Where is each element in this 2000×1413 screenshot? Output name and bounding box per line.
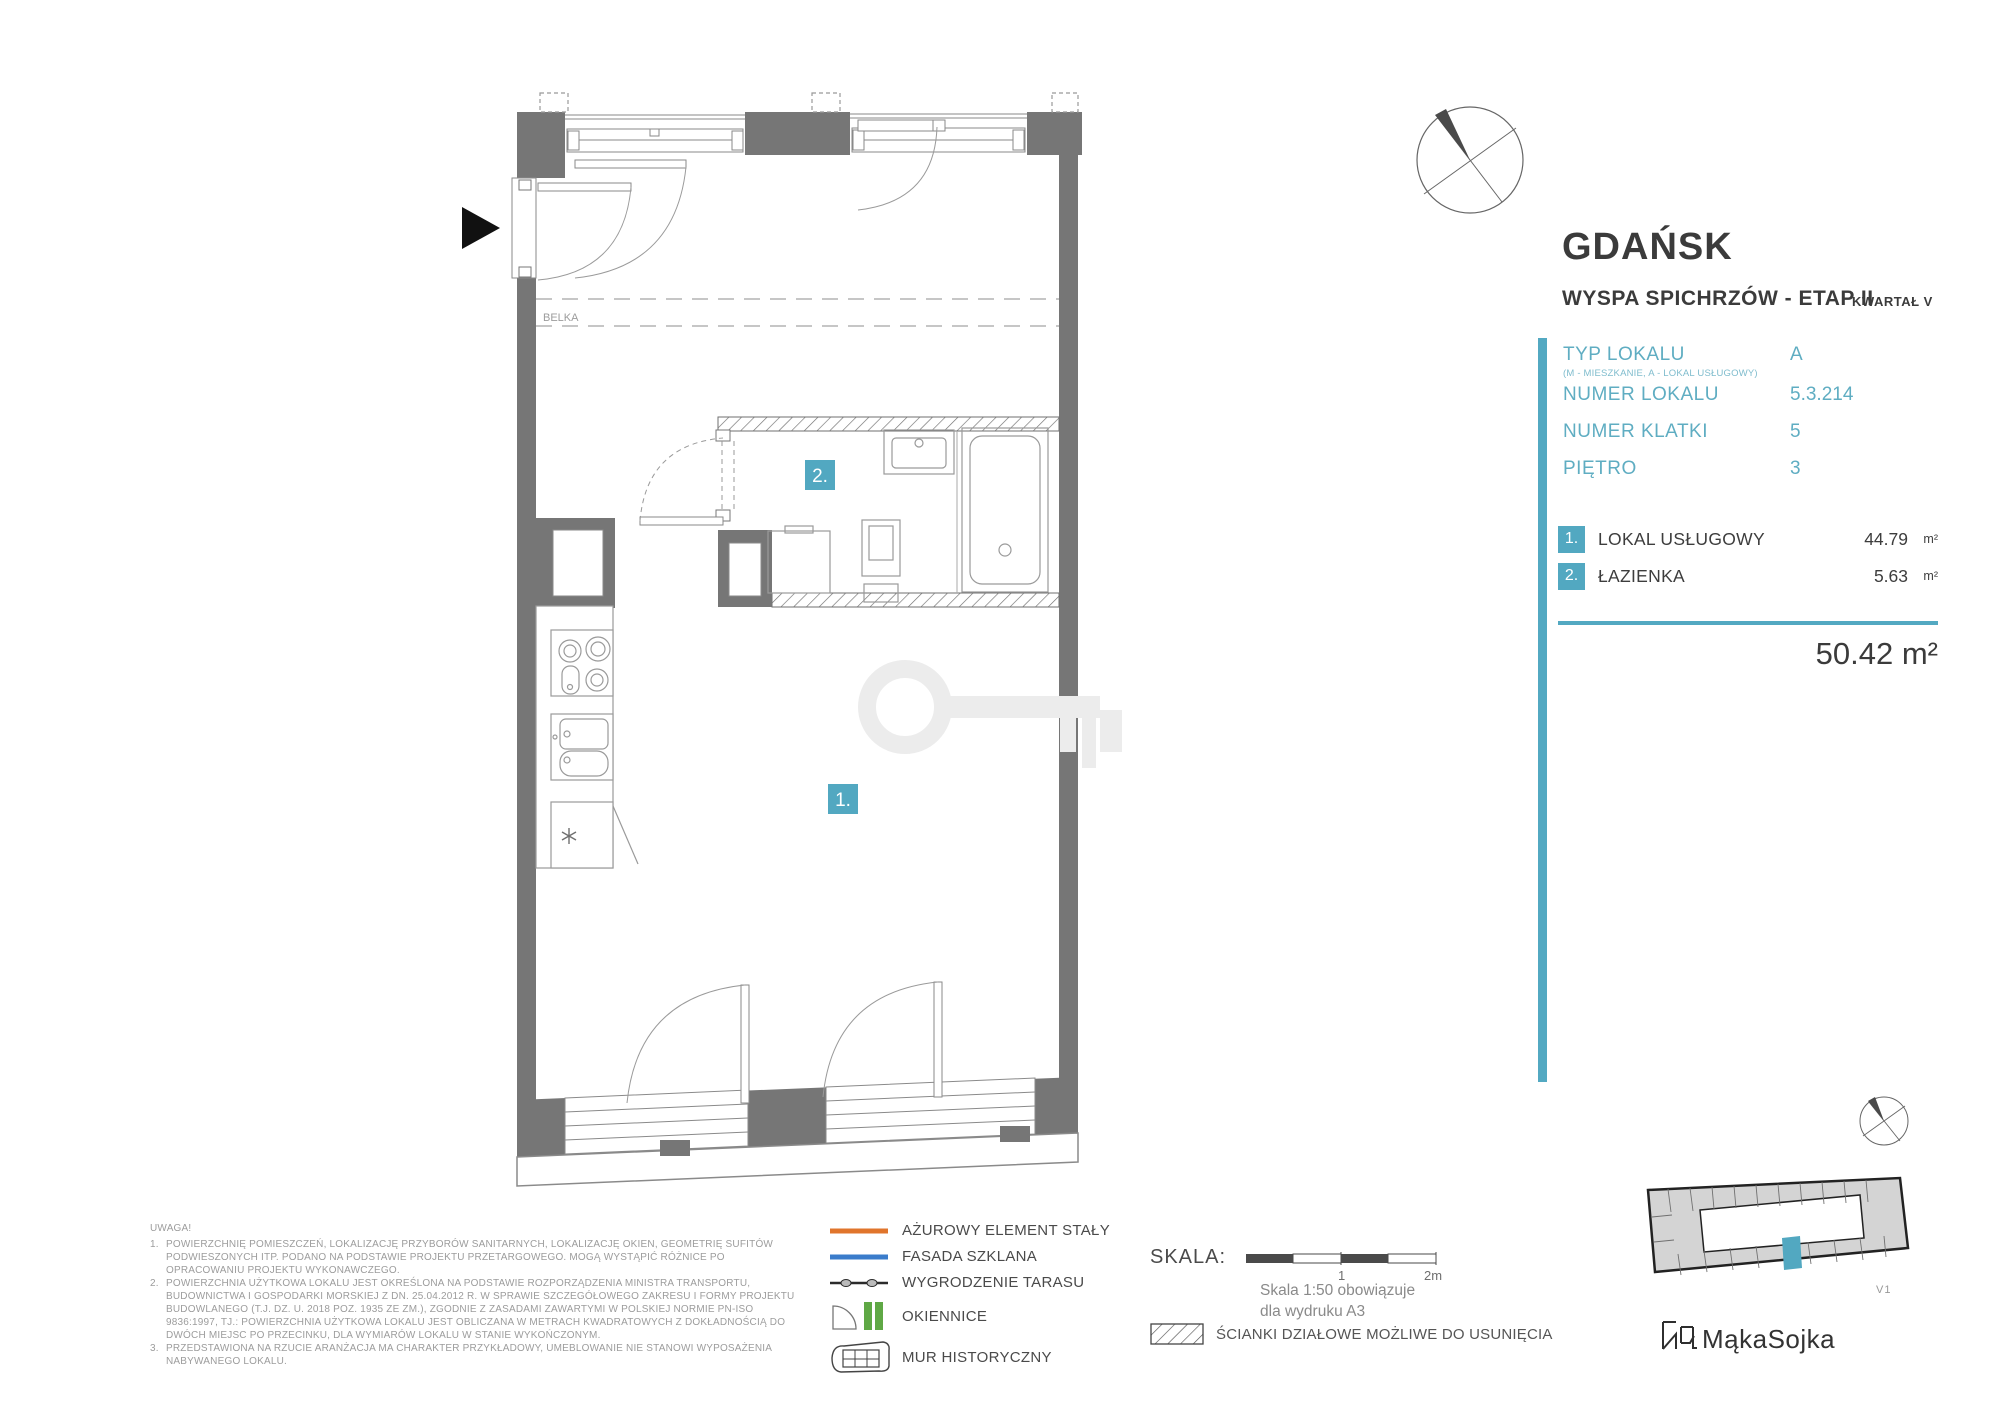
partition-legend-label: ŚCIANKI DZIAŁOWE MOŻLIWE DO USUNIĘCIA <box>1216 1326 1553 1343</box>
bathroom: 2. <box>640 417 1059 607</box>
kitchen-hob <box>551 630 613 696</box>
brand-logo-icon <box>1660 1318 1698 1354</box>
total-area: 50.42 m² <box>1558 636 1938 672</box>
bathtub <box>962 428 1048 592</box>
kitchen-cabinet <box>551 802 613 868</box>
blue-line-icon <box>830 1253 892 1261</box>
notes-title: UWAGA! <box>150 1222 805 1235</box>
info-sublabel: (M - MIESZKANIE, A - LOKAL USŁUGOWY) <box>1563 368 1758 379</box>
info-value: 5.3.214 <box>1790 384 1853 406</box>
accent-bar <box>1538 338 1547 1082</box>
page-title: GDAŃSK <box>1562 226 1733 269</box>
room-area-unit: m² <box>1908 569 1938 583</box>
room-2-badge-label: 2. <box>812 466 828 487</box>
note-text: POWIERZCHNIA UŻYTKOWA LOKALU JEST OKREŚL… <box>166 1277 805 1342</box>
room-area: 44.79 <box>1864 529 1908 550</box>
shutters-icon <box>830 1300 892 1332</box>
info-value: 5 <box>1790 421 1801 443</box>
note-item: 1. POWIERZCHNIĘ POMIESZCZEŃ, LOKALIZACJĘ… <box>150 1238 805 1277</box>
beam-label: BELKA <box>543 312 579 324</box>
key-watermark <box>867 669 1122 768</box>
kitchen <box>536 606 638 868</box>
info-label: PIĘTRO <box>1563 458 1637 480</box>
info-row-typ-lokalu: TYP LOKALU A <box>1563 344 1937 370</box>
room-row-1: 1. LOKAL USŁUGOWY 44.79 m² <box>1558 525 1938 553</box>
north-compass-icon <box>1408 100 1532 224</box>
room-1-badge-label: 1. <box>835 790 851 811</box>
room-name: LOKAL USŁUGOWY <box>1598 529 1765 550</box>
quarter-label: KWARTAŁ V <box>1852 294 1933 309</box>
scale-caption-2: dla wydruku A3 <box>1260 1303 1365 1321</box>
floor-plan-drawing: BELKA 2. <box>440 55 1140 1215</box>
washing-machine <box>768 531 830 593</box>
scale-label: SKALA: <box>1150 1246 1226 1269</box>
info-row-numer-klatki: NUMER KLATKI 5 <box>1563 421 1937 447</box>
building-site-map <box>1638 1162 1918 1282</box>
info-row-pietro: PIĘTRO 3 <box>1563 458 1937 484</box>
total-divider <box>1558 621 1938 625</box>
scale-bar <box>1246 1252 1442 1266</box>
terrace-fence-icon <box>830 1278 892 1288</box>
brand-name: MąkaSojka <box>1702 1324 1835 1355</box>
info-label: TYP LOKALU <box>1563 344 1685 366</box>
scale-caption-1: Skala 1:50 obowiązuje <box>1260 1282 1415 1300</box>
top-window-1 <box>565 112 745 278</box>
top-window-2 <box>850 112 1027 210</box>
site-map-compass-icon <box>1856 1094 1912 1150</box>
note-text: POWIERZCHNIĘ POMIESZCZEŃ, LOKALIZACJĘ PR… <box>166 1238 805 1277</box>
historic-wall-icon <box>830 1338 892 1376</box>
room-1-marker: 1. <box>828 784 858 814</box>
scale-tick-1: 1 <box>1338 1268 1345 1283</box>
info-value: A <box>1790 344 1803 366</box>
legend-item-wygrodzenie: WYGRODZENIE TARASU <box>830 1274 1250 1291</box>
floor-plan-page: { "header": { "city": "GDAŃSK", "subtitl… <box>0 0 2000 1413</box>
wall-pillar <box>517 518 615 608</box>
info-label: NUMER KLATKI <box>1563 421 1708 443</box>
note-text: PRZEDSTAWIONA NA RZUCIE ARANŻACJA MA CHA… <box>166 1342 805 1368</box>
note-item: 3. PRZEDSTAWIONA NA RZUCIE ARANŻACJA MA … <box>150 1342 805 1368</box>
room-number-badge: 1. <box>1558 526 1585 553</box>
info-label: NUMER LOKALU <box>1563 384 1719 406</box>
legend-item-azurowy: AŻUROWY ELEMENT STAŁY <box>830 1222 1250 1239</box>
room-name: ŁAZIENKA <box>1598 566 1685 587</box>
note-item: 2. POWIERZCHNIA UŻYTKOWA LOKALU JEST OKR… <box>150 1277 805 1342</box>
site-map-version: V1 <box>1876 1284 1891 1296</box>
partition-hatch-swatch <box>1150 1323 1204 1345</box>
facade-dashed-columns <box>540 93 1078 112</box>
room-area-unit: m² <box>1908 532 1938 546</box>
project-subtitle: WYSPA SPICHRZÓW - ETAP II <box>1562 287 1874 311</box>
orange-line-icon <box>830 1227 892 1235</box>
room-number-badge: 2. <box>1558 563 1585 590</box>
beam-belka: BELKA <box>536 299 1059 326</box>
room-area: 5.63 <box>1874 566 1908 587</box>
entry-door <box>512 178 631 280</box>
notes-block: UWAGA! 1. POWIERZCHNIĘ POMIESZCZEŃ, LOKA… <box>150 1222 805 1368</box>
scale-tick-2m: 2m <box>1424 1268 1442 1283</box>
info-value: 3 <box>1790 458 1801 480</box>
info-row-numer-lokalu: NUMER LOKALU 5.3.214 <box>1563 384 1937 410</box>
room-row-2: 2. ŁAZIENKA 5.63 m² <box>1558 562 1938 590</box>
entrance-arrow-icon <box>462 207 500 249</box>
highlighted-unit <box>1782 1236 1802 1270</box>
toilet <box>862 520 900 576</box>
